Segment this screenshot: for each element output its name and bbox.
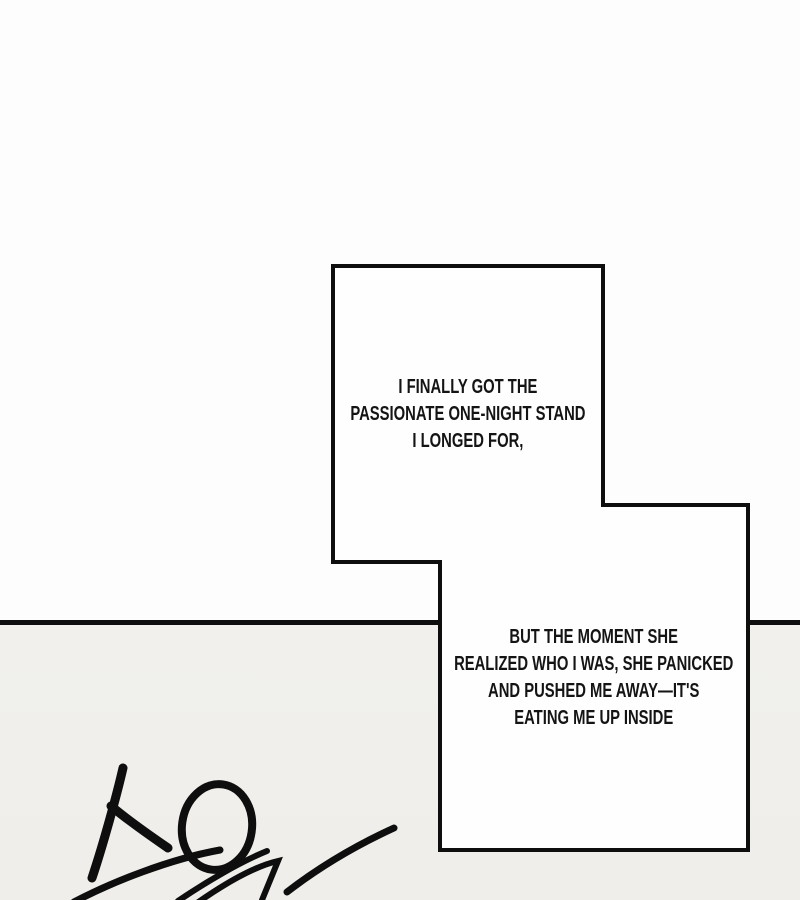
comic-page: I FINALLY GOT THE PASSIONATE ONE-NIGHT S… <box>0 0 800 900</box>
narration-line: EATING ME UP INSIDE <box>454 705 733 732</box>
narration-line: AND PUSHED ME AWAY—IT'S <box>454 678 733 705</box>
narration-line: I LONGED FOR, <box>350 428 585 455</box>
narration-text-1: I FINALLY GOT THE PASSIONATE ONE-NIGHT S… <box>350 374 585 455</box>
narration-line: PASSIONATE ONE-NIGHT STAND <box>350 401 585 428</box>
sfx-stroke-right-slash <box>287 828 394 892</box>
sfx-drawing <box>74 768 394 900</box>
narration-line: BUT THE MOMENT SHE <box>454 624 733 651</box>
narration-text-2: BUT THE MOMENT SHE REALIZED WHO I WAS, S… <box>454 624 733 732</box>
sfx-stroke-siot-left <box>92 768 123 878</box>
narration-line: I FINALLY GOT THE <box>350 374 585 401</box>
narration-line: REALIZED WHO I WAS, SHE PANICKED <box>454 651 733 678</box>
narration-box-2: BUT THE MOMENT SHE REALIZED WHO I WAS, S… <box>440 505 748 850</box>
sfx-stroke-siot-right <box>111 806 168 848</box>
